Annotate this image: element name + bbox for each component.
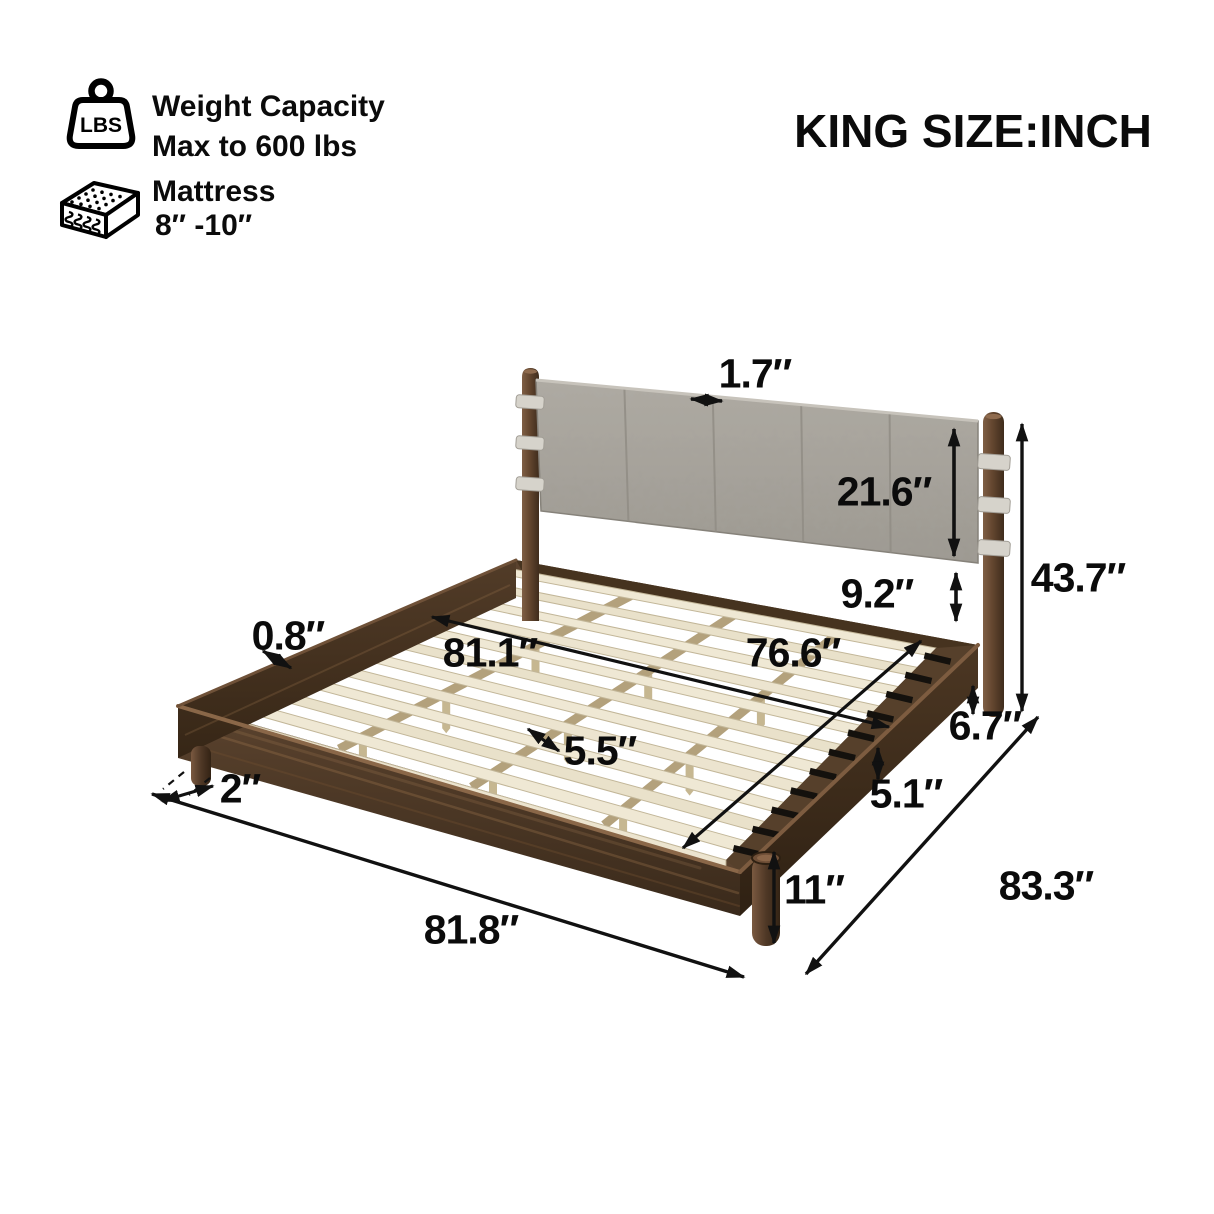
diagram-canvas: LBS Weight Capacity Max to 600 lbs Mattr… <box>0 0 1214 1214</box>
dim-headboard-thickness-arrow <box>691 399 722 401</box>
mattress-icon <box>56 176 142 244</box>
strap <box>978 539 1011 556</box>
dim-overall-width-label: 81.8″ <box>424 907 518 954</box>
strap <box>516 477 545 492</box>
strap <box>516 436 545 451</box>
strap <box>978 453 1011 470</box>
dim-overall-height-label: 43.7″ <box>1031 555 1125 602</box>
dim-slat-spacing-label: 5.5″ <box>564 728 637 775</box>
dim-leg-inset-label: 2″ <box>220 766 260 813</box>
dim-leg-height-label: 11″ <box>784 867 844 914</box>
dim-overall-length-label: 83.3″ <box>999 863 1093 910</box>
post-cap-highlight <box>986 414 1002 419</box>
size-title: KING SIZE:INCH <box>794 104 1152 158</box>
dim-post-clearance-label: 6.7″ <box>949 703 1022 750</box>
weight-lbs-icon: LBS <box>60 74 142 160</box>
dim-inner-length-label: 81.1″ <box>443 630 537 677</box>
dim-headboard-thickness-label: 1.7″ <box>719 351 792 398</box>
dim-headboard-gap-label: 9.2″ <box>841 571 914 618</box>
mattress-icon-box <box>56 176 142 244</box>
dim-headboard-height-label: 21.6″ <box>837 469 931 516</box>
mattress-title: Mattress <box>152 177 275 207</box>
weight-icon-label: LBS <box>80 114 122 137</box>
post-cap-highlight <box>524 369 537 373</box>
strap <box>516 395 545 410</box>
mattress-subtitle: 8″ -10″ <box>155 211 252 241</box>
dim-slat-overhang-label: 0.8″ <box>252 613 325 660</box>
leg-front-right <box>752 856 780 946</box>
weight-capacity-icon-box: LBS <box>60 74 142 160</box>
dim-rail-thickness-label: 5.1″ <box>870 771 943 818</box>
weight-capacity-title: Weight Capacity <box>152 92 385 122</box>
weight-capacity-subtitle: Max to 600 lbs <box>152 132 357 162</box>
dim-inner-width-label: 76.6″ <box>746 630 840 677</box>
strap <box>978 496 1011 513</box>
